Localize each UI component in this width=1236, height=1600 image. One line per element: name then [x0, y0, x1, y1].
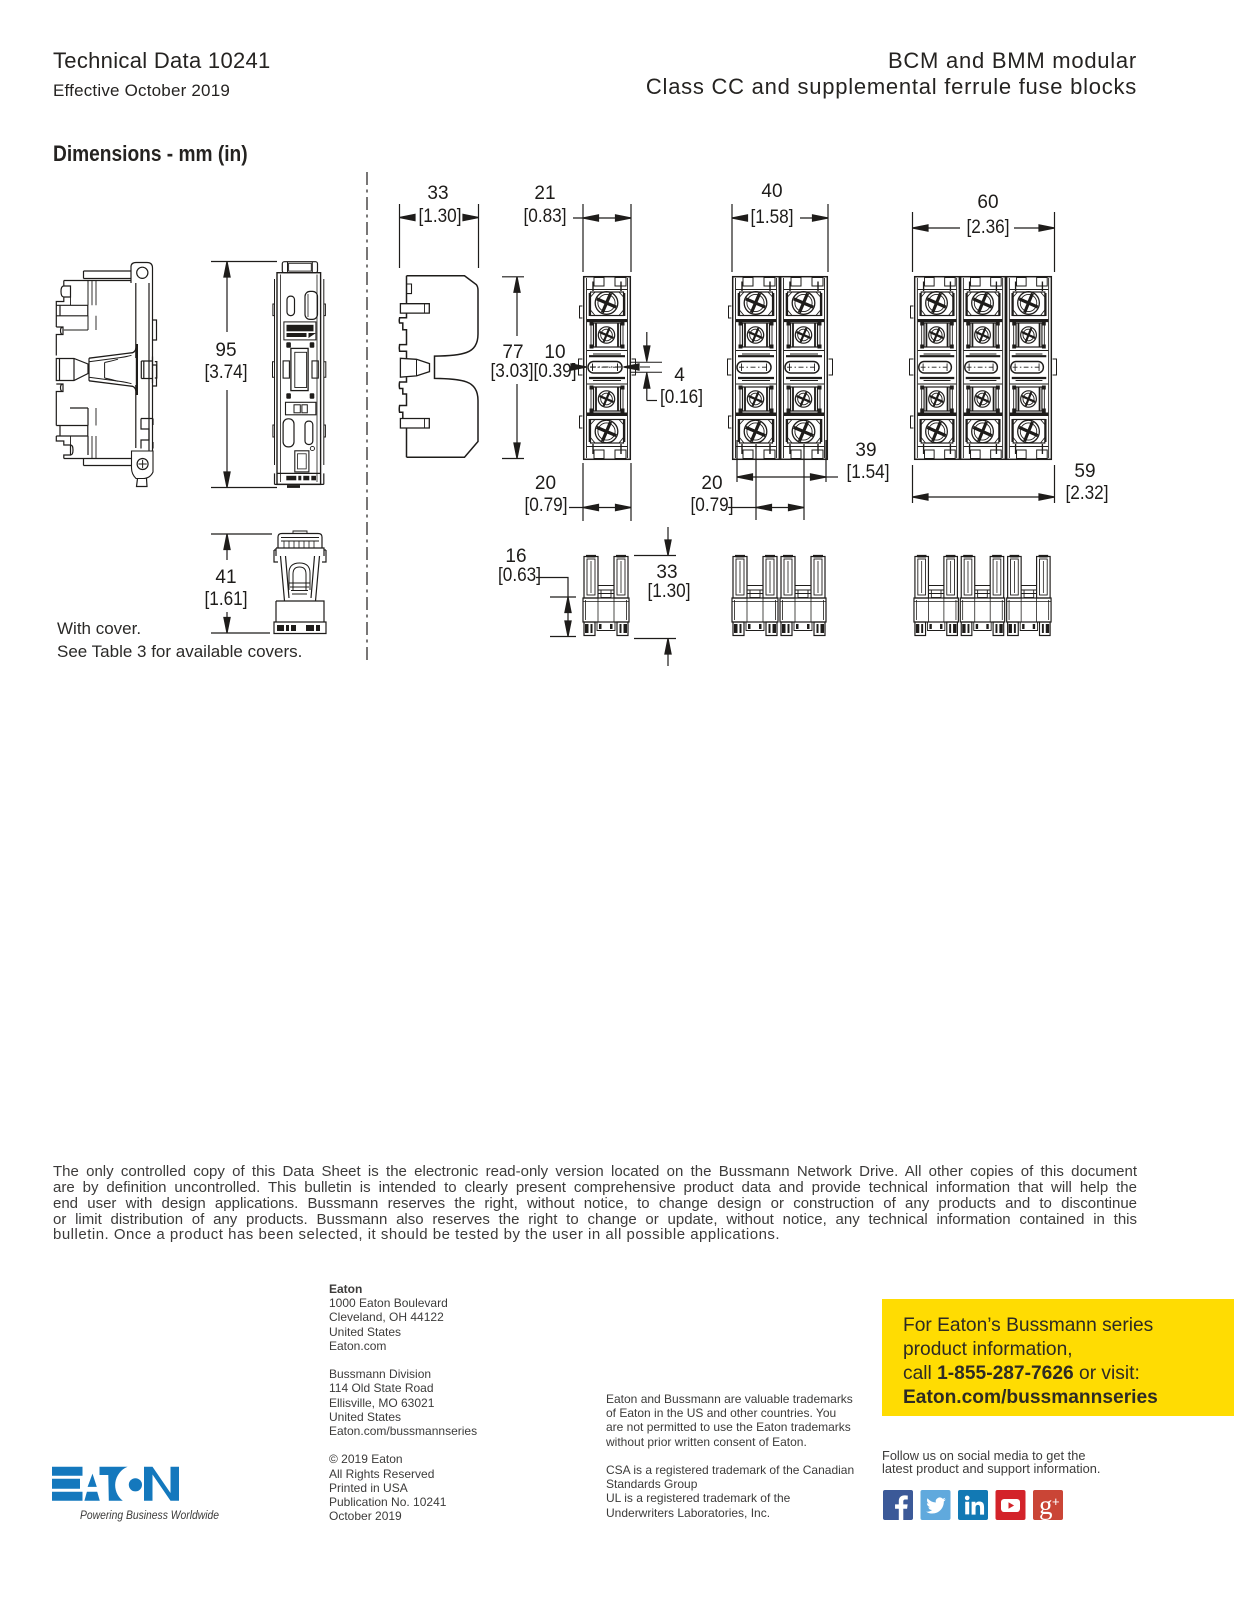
svg-text:40: 40	[761, 181, 782, 202]
svg-text:33: 33	[656, 562, 677, 583]
svg-text:41: 41	[215, 567, 236, 588]
svg-text:[1.58]: [1.58]	[751, 207, 794, 228]
svg-text:[0.79]: [0.79]	[525, 495, 568, 516]
svg-text:+: +	[1052, 1494, 1060, 1509]
svg-text:10: 10	[544, 342, 565, 363]
svg-text:39: 39	[855, 440, 876, 461]
svg-text:20: 20	[701, 473, 722, 494]
svg-text:[2.36]: [2.36]	[967, 217, 1010, 238]
svg-text:[3.74]: [3.74]	[205, 362, 248, 383]
svg-text:[3.03]: [3.03]	[491, 361, 534, 382]
svg-text:[0.83]: [0.83]	[524, 206, 567, 227]
svg-text:95: 95	[215, 340, 236, 361]
svg-text:[1.30]: [1.30]	[648, 581, 691, 602]
svg-text:See Table 3 for available cove: See Table 3 for available covers.	[57, 642, 302, 661]
svg-text:16: 16	[505, 546, 526, 567]
svg-text:4: 4	[674, 365, 685, 386]
svg-text:With cover.: With cover.	[57, 619, 141, 638]
svg-text:[1.30]: [1.30]	[419, 206, 462, 227]
svg-text:[0.39]: [0.39]	[534, 361, 577, 382]
svg-text:77: 77	[502, 342, 523, 363]
svg-text:[0.79]: [0.79]	[691, 495, 734, 516]
svg-text:Powering Business Worldwide: Powering Business Worldwide	[80, 1508, 219, 1522]
svg-text:[0.63]: [0.63]	[498, 565, 541, 586]
svg-text:20: 20	[535, 473, 556, 494]
svg-text:21: 21	[534, 183, 555, 204]
svg-text:[0.16]: [0.16]	[660, 387, 703, 408]
svg-text:g: g	[1039, 1490, 1053, 1520]
svg-text:59: 59	[1074, 461, 1095, 482]
svg-text:[1.54]: [1.54]	[847, 462, 890, 483]
svg-text:33: 33	[427, 183, 448, 204]
svg-text:[2.32]: [2.32]	[1066, 483, 1109, 504]
svg-text:60: 60	[977, 192, 998, 213]
svg-text:[1.61]: [1.61]	[205, 589, 248, 610]
